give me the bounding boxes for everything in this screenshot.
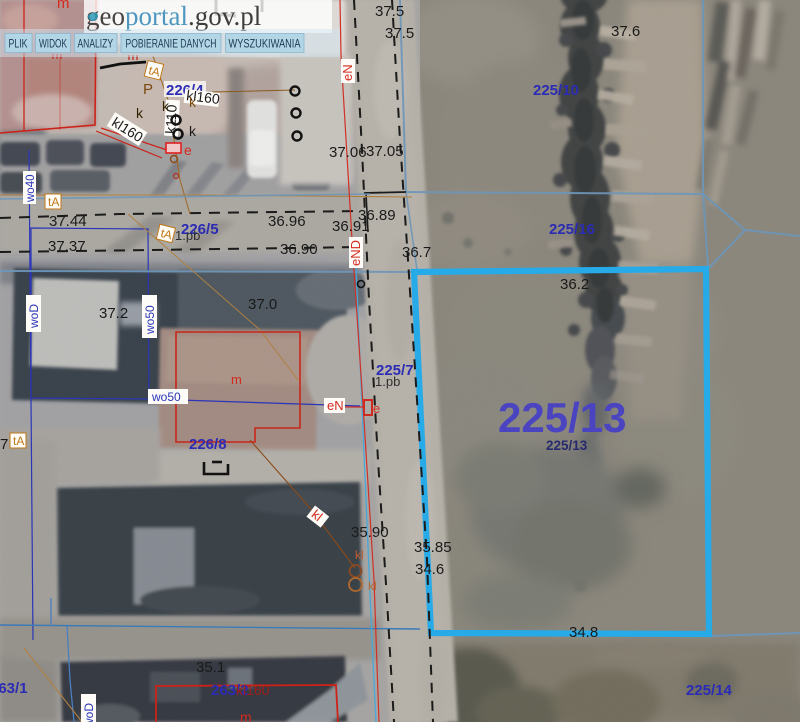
svg-text:34.6: 34.6 (415, 561, 444, 578)
svg-text:P: P (143, 81, 153, 98)
svg-text:k: k (189, 94, 197, 110)
svg-text:woD: woD (82, 703, 96, 722)
svg-text:263/1: 263/1 (0, 680, 28, 697)
svg-text:37.2: 37.2 (99, 305, 128, 322)
svg-text:37.5: 37.5 (385, 25, 414, 42)
svg-text:1.pb: 1.pb (375, 374, 400, 389)
svg-text:woD: woD (27, 304, 41, 329)
svg-text:225/10: 225/10 (533, 82, 579, 99)
svg-text:eN: eN (340, 64, 355, 81)
svg-text:tA: tA (48, 195, 59, 209)
svg-text:225/16: 225/16 (549, 221, 595, 238)
svg-text:m: m (231, 372, 242, 387)
svg-text:eN: eN (327, 398, 344, 413)
svg-text:36.91: 36.91 (332, 218, 370, 235)
svg-text:e: e (184, 142, 192, 158)
svg-text:37.37: 37.37 (48, 238, 86, 255)
svg-text:34.8: 34.8 (569, 624, 598, 641)
svg-text:m: m (57, 0, 70, 12)
svg-text:tA: tA (13, 434, 24, 448)
svg-text:36.2: 36.2 (560, 276, 589, 293)
svg-text:37.5: 37.5 (375, 3, 404, 20)
svg-text:37.44: 37.44 (49, 213, 87, 230)
svg-text:37.6: 37.6 (611, 23, 640, 40)
svg-text:35.90: 35.90 (351, 524, 389, 541)
svg-text:36.90: 36.90 (280, 241, 318, 258)
svg-text:37.05: 37.05 (366, 143, 404, 160)
svg-text:WIDOK: WIDOK (39, 37, 67, 51)
svg-text:m: m (240, 709, 252, 722)
svg-text:k: k (136, 105, 144, 121)
svg-text:e: e (373, 401, 380, 416)
svg-text:35.1: 35.1 (196, 659, 225, 676)
svg-text:eND: eND (348, 240, 363, 266)
svg-text:kl: kl (355, 548, 364, 562)
svg-text:37.06: 37.06 (329, 144, 367, 161)
svg-text:geoportal.gov.pl: geoportal.gov.pl (86, 1, 261, 31)
svg-text:225/14: 225/14 (686, 682, 733, 699)
svg-text:wo50: wo50 (151, 390, 181, 404)
svg-text:1.pb: 1.pb (175, 228, 200, 243)
svg-text:226/8: 226/8 (189, 436, 227, 453)
svg-text:kl: kl (368, 579, 377, 593)
svg-text:kl160: kl160 (236, 682, 270, 698)
svg-text:k: k (162, 98, 170, 114)
svg-text:225/13: 225/13 (498, 394, 626, 441)
svg-text:POBIERANIE DANYCH: POBIERANIE DANYCH (126, 37, 217, 51)
svg-text:7: 7 (0, 436, 8, 453)
svg-text:36.96: 36.96 (268, 213, 306, 230)
svg-text:ANALIZY: ANALIZY (78, 37, 114, 51)
svg-text:k: k (189, 123, 197, 139)
svg-text:PLIK: PLIK (9, 37, 28, 51)
svg-text:36.7: 36.7 (402, 244, 431, 261)
svg-text:wo50: wo50 (143, 305, 157, 335)
svg-text:wo40: wo40 (25, 175, 37, 204)
svg-text:WYSZUKIWANIA: WYSZUKIWANIA (229, 37, 301, 51)
svg-text:35.85: 35.85 (414, 539, 452, 556)
svg-text:37.0: 37.0 (248, 296, 277, 313)
